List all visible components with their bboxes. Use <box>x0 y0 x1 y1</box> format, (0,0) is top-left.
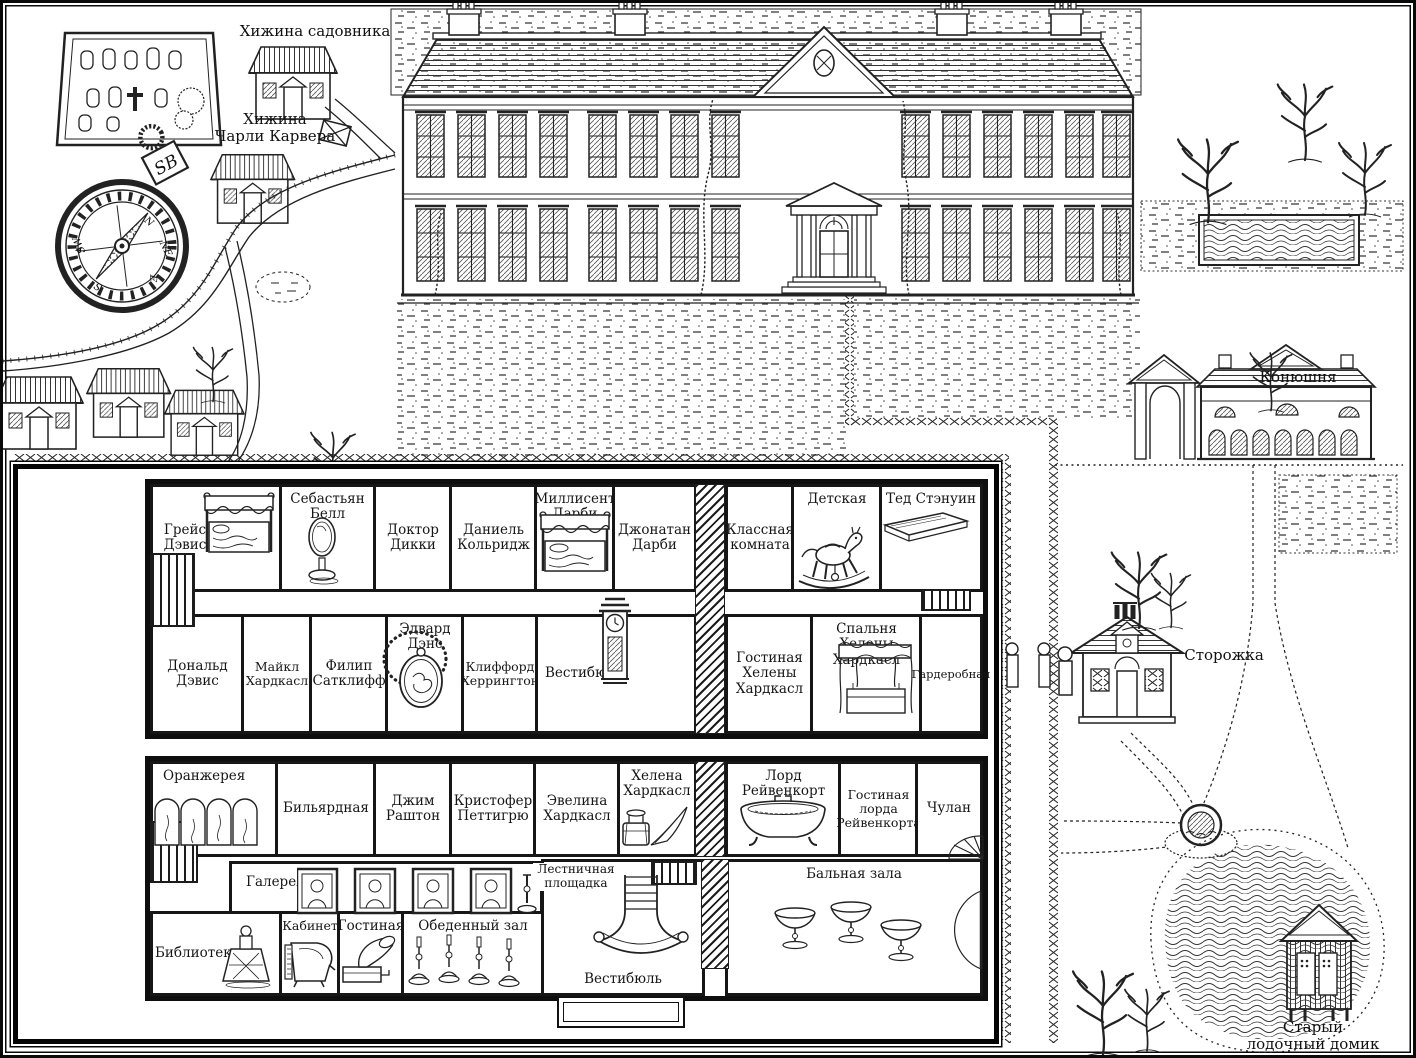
room-daniel-coleridge: Даниель Кольридж <box>449 484 538 592</box>
champagne-coupes-icon <box>767 899 931 975</box>
candlesticks-icon <box>407 933 523 991</box>
cottages <box>3 369 244 456</box>
room-clifford-herrington: Клиффорд Херрингтон <box>461 614 539 734</box>
bathtub-icon <box>735 793 833 849</box>
compass: N NE E S SW SB <box>58 119 188 310</box>
graveyard <box>57 33 221 145</box>
front-steps <box>557 996 685 1028</box>
portico <box>782 183 886 293</box>
gatehouse-lodge <box>1058 603 1183 723</box>
canop <box>833 637 919 727</box>
stable <box>1129 345 1375 459</box>
gardener-hut-label: Хижина садовника <box>235 23 395 40</box>
estate-map: N NE E S SW SB <box>0 0 1416 1058</box>
inkwell-quill-icon <box>617 799 693 853</box>
four-poster-bed-icon <box>199 486 279 562</box>
room-stair-landing: Лестничная площадка <box>533 863 619 891</box>
chimney-shaft <box>695 761 725 857</box>
portraits-icon <box>297 867 539 917</box>
room-michael-hardcastle: Майкл Хардкасл <box>241 614 313 734</box>
room-jonathan-derby: Джонатан Дарби <box>612 484 697 592</box>
lodge-label: Сторожка <box>1179 647 1269 664</box>
staircase <box>150 553 195 627</box>
grandfather-clock-icon <box>595 587 635 691</box>
chimney-shaft <box>695 484 725 734</box>
room-schoolroom: Классная комната <box>725 484 795 592</box>
carver-hut-illustration <box>211 155 295 223</box>
folding-screen-icon <box>153 785 259 851</box>
thicket-oval <box>256 272 310 302</box>
gate-posts <box>1006 643 1050 687</box>
grand-piano-icon <box>281 935 339 989</box>
four-poster-bed-icon <box>535 505 615 581</box>
reflecting-pool <box>1141 201 1403 271</box>
room-helena-parlour: Гостиная Хелены Хардкасл <box>725 614 814 734</box>
stable-label: Конюшня <box>1243 369 1353 386</box>
cheval-mirror-icon <box>303 513 341 587</box>
carver-hut-label: ХижинаЧарли Карвера <box>199 111 351 146</box>
manor-house <box>391 3 1141 303</box>
gramophone-icon <box>337 935 399 987</box>
rocking-horse-icon <box>795 523 873 591</box>
decanter-icon <box>215 923 279 991</box>
ballroom-door-arc <box>931 887 987 975</box>
room-evelyn-hardcastle: Эвелина Хардкасл <box>533 761 621 857</box>
boathouse-label: Старыйлодочный домик <box>1233 1019 1393 1054</box>
room-doctor-dickie: Доктор Дикки <box>373 484 453 592</box>
chimney-shaft <box>701 859 729 969</box>
book-icon <box>879 507 975 547</box>
locket-icon <box>377 623 455 717</box>
room-christopher-pettigrew: Кристофер Петтигрю <box>449 761 537 857</box>
room-ravencourt-parlour: Гостиная лорда Рейвенкорта <box>838 761 919 857</box>
spiral-stair-icon <box>947 833 985 861</box>
gardener-hut-illustration <box>249 47 337 119</box>
room-wardrobe: Гардеробная <box>919 614 983 734</box>
room-billiards: Бильярдная <box>275 761 377 857</box>
staircase <box>921 589 971 611</box>
room-donald-davis: Дональд Дэвис <box>150 614 245 734</box>
room-jim-rashton: Джим Раштон <box>373 761 453 857</box>
